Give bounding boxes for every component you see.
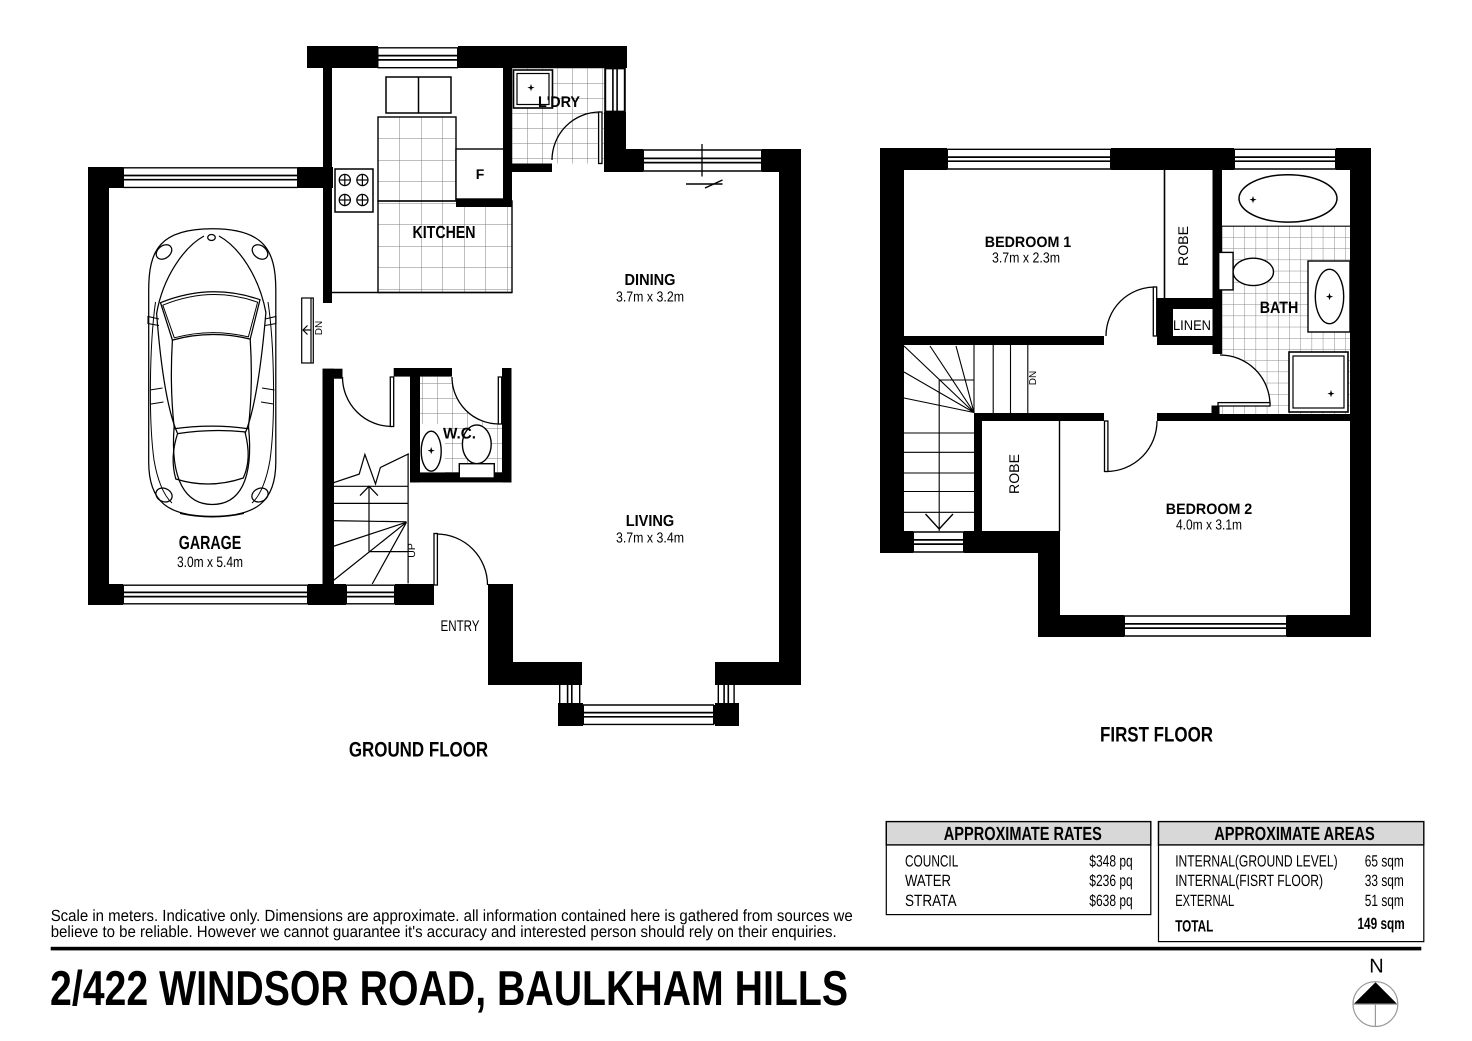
svg-text:DN: DN (314, 321, 325, 335)
svg-text:F: F (476, 166, 485, 182)
svg-text:WATER: WATER (905, 872, 951, 890)
svg-text:W.C.: W.C. (443, 426, 476, 443)
svg-text:GROUND FLOOR: GROUND FLOOR (349, 739, 488, 762)
svg-text:FIRST FLOOR: FIRST FLOOR (1100, 724, 1213, 747)
svg-text:KITCHEN: KITCHEN (413, 222, 476, 242)
svg-text:INTERNAL(GROUND LEVEL): INTERNAL(GROUND LEVEL) (1175, 853, 1337, 871)
svg-text:4.0m x 3.1m: 4.0m x 3.1m (1176, 518, 1242, 534)
svg-text:3.7m x 3.4m: 3.7m x 3.4m (616, 531, 684, 547)
svg-text:APPROXIMATE AREAS: APPROXIMATE AREAS (1214, 824, 1375, 845)
svg-text:believe to be reliable. Howeve: believe to be reliable. However we canno… (51, 923, 837, 941)
svg-text:TOTAL: TOTAL (1175, 918, 1213, 936)
svg-text:DINING: DINING (625, 272, 676, 289)
svg-text:EXTERNAL: EXTERNAL (1175, 892, 1234, 910)
svg-text:$236 pq: $236 pq (1089, 872, 1132, 890)
svg-text:BEDROOM 2: BEDROOM 2 (1166, 501, 1253, 518)
svg-text:GARAGE: GARAGE (179, 533, 242, 554)
svg-text:COUNCIL: COUNCIL (905, 853, 958, 871)
svg-text:BATH: BATH (1260, 299, 1299, 317)
svg-text:LIVING: LIVING (626, 513, 675, 530)
svg-text:65 sqm: 65 sqm (1365, 853, 1404, 871)
svg-text:BEDROOM 1: BEDROOM 1 (985, 234, 1072, 251)
svg-text:3.7m x 3.2m: 3.7m x 3.2m (616, 290, 684, 306)
svg-text:LINEN: LINEN (1173, 317, 1211, 333)
svg-text:149 sqm: 149 sqm (1358, 915, 1405, 933)
svg-text:ENTRY: ENTRY (441, 618, 480, 635)
svg-text:$638 pq: $638 pq (1089, 892, 1132, 910)
svg-text:3.7m x 2.3m: 3.7m x 2.3m (992, 251, 1060, 267)
svg-text:STRATA: STRATA (905, 892, 957, 910)
svg-text:ROBE: ROBE (1175, 226, 1191, 266)
svg-text:INTERNAL(FISRT FLOOR): INTERNAL(FISRT FLOOR) (1175, 872, 1323, 890)
svg-text:51 sqm: 51 sqm (1365, 892, 1404, 910)
svg-text:$348 pq: $348 pq (1089, 853, 1132, 871)
svg-text:APPROXIMATE RATES: APPROXIMATE RATES (944, 824, 1102, 845)
svg-text:2/422 WINDSOR ROAD, BAULKHAM H: 2/422 WINDSOR ROAD, BAULKHAM HILLS (50, 962, 848, 1016)
svg-text:3.0m x 5.4m: 3.0m x 5.4m (177, 554, 243, 571)
svg-text:33 sqm: 33 sqm (1365, 872, 1404, 890)
svg-text:N: N (1369, 956, 1383, 978)
svg-text:DN: DN (1028, 371, 1039, 385)
svg-text:ROBE: ROBE (1006, 454, 1022, 494)
svg-text:L'DRY: L'DRY (538, 94, 581, 111)
svg-text:UP: UP (406, 543, 418, 558)
